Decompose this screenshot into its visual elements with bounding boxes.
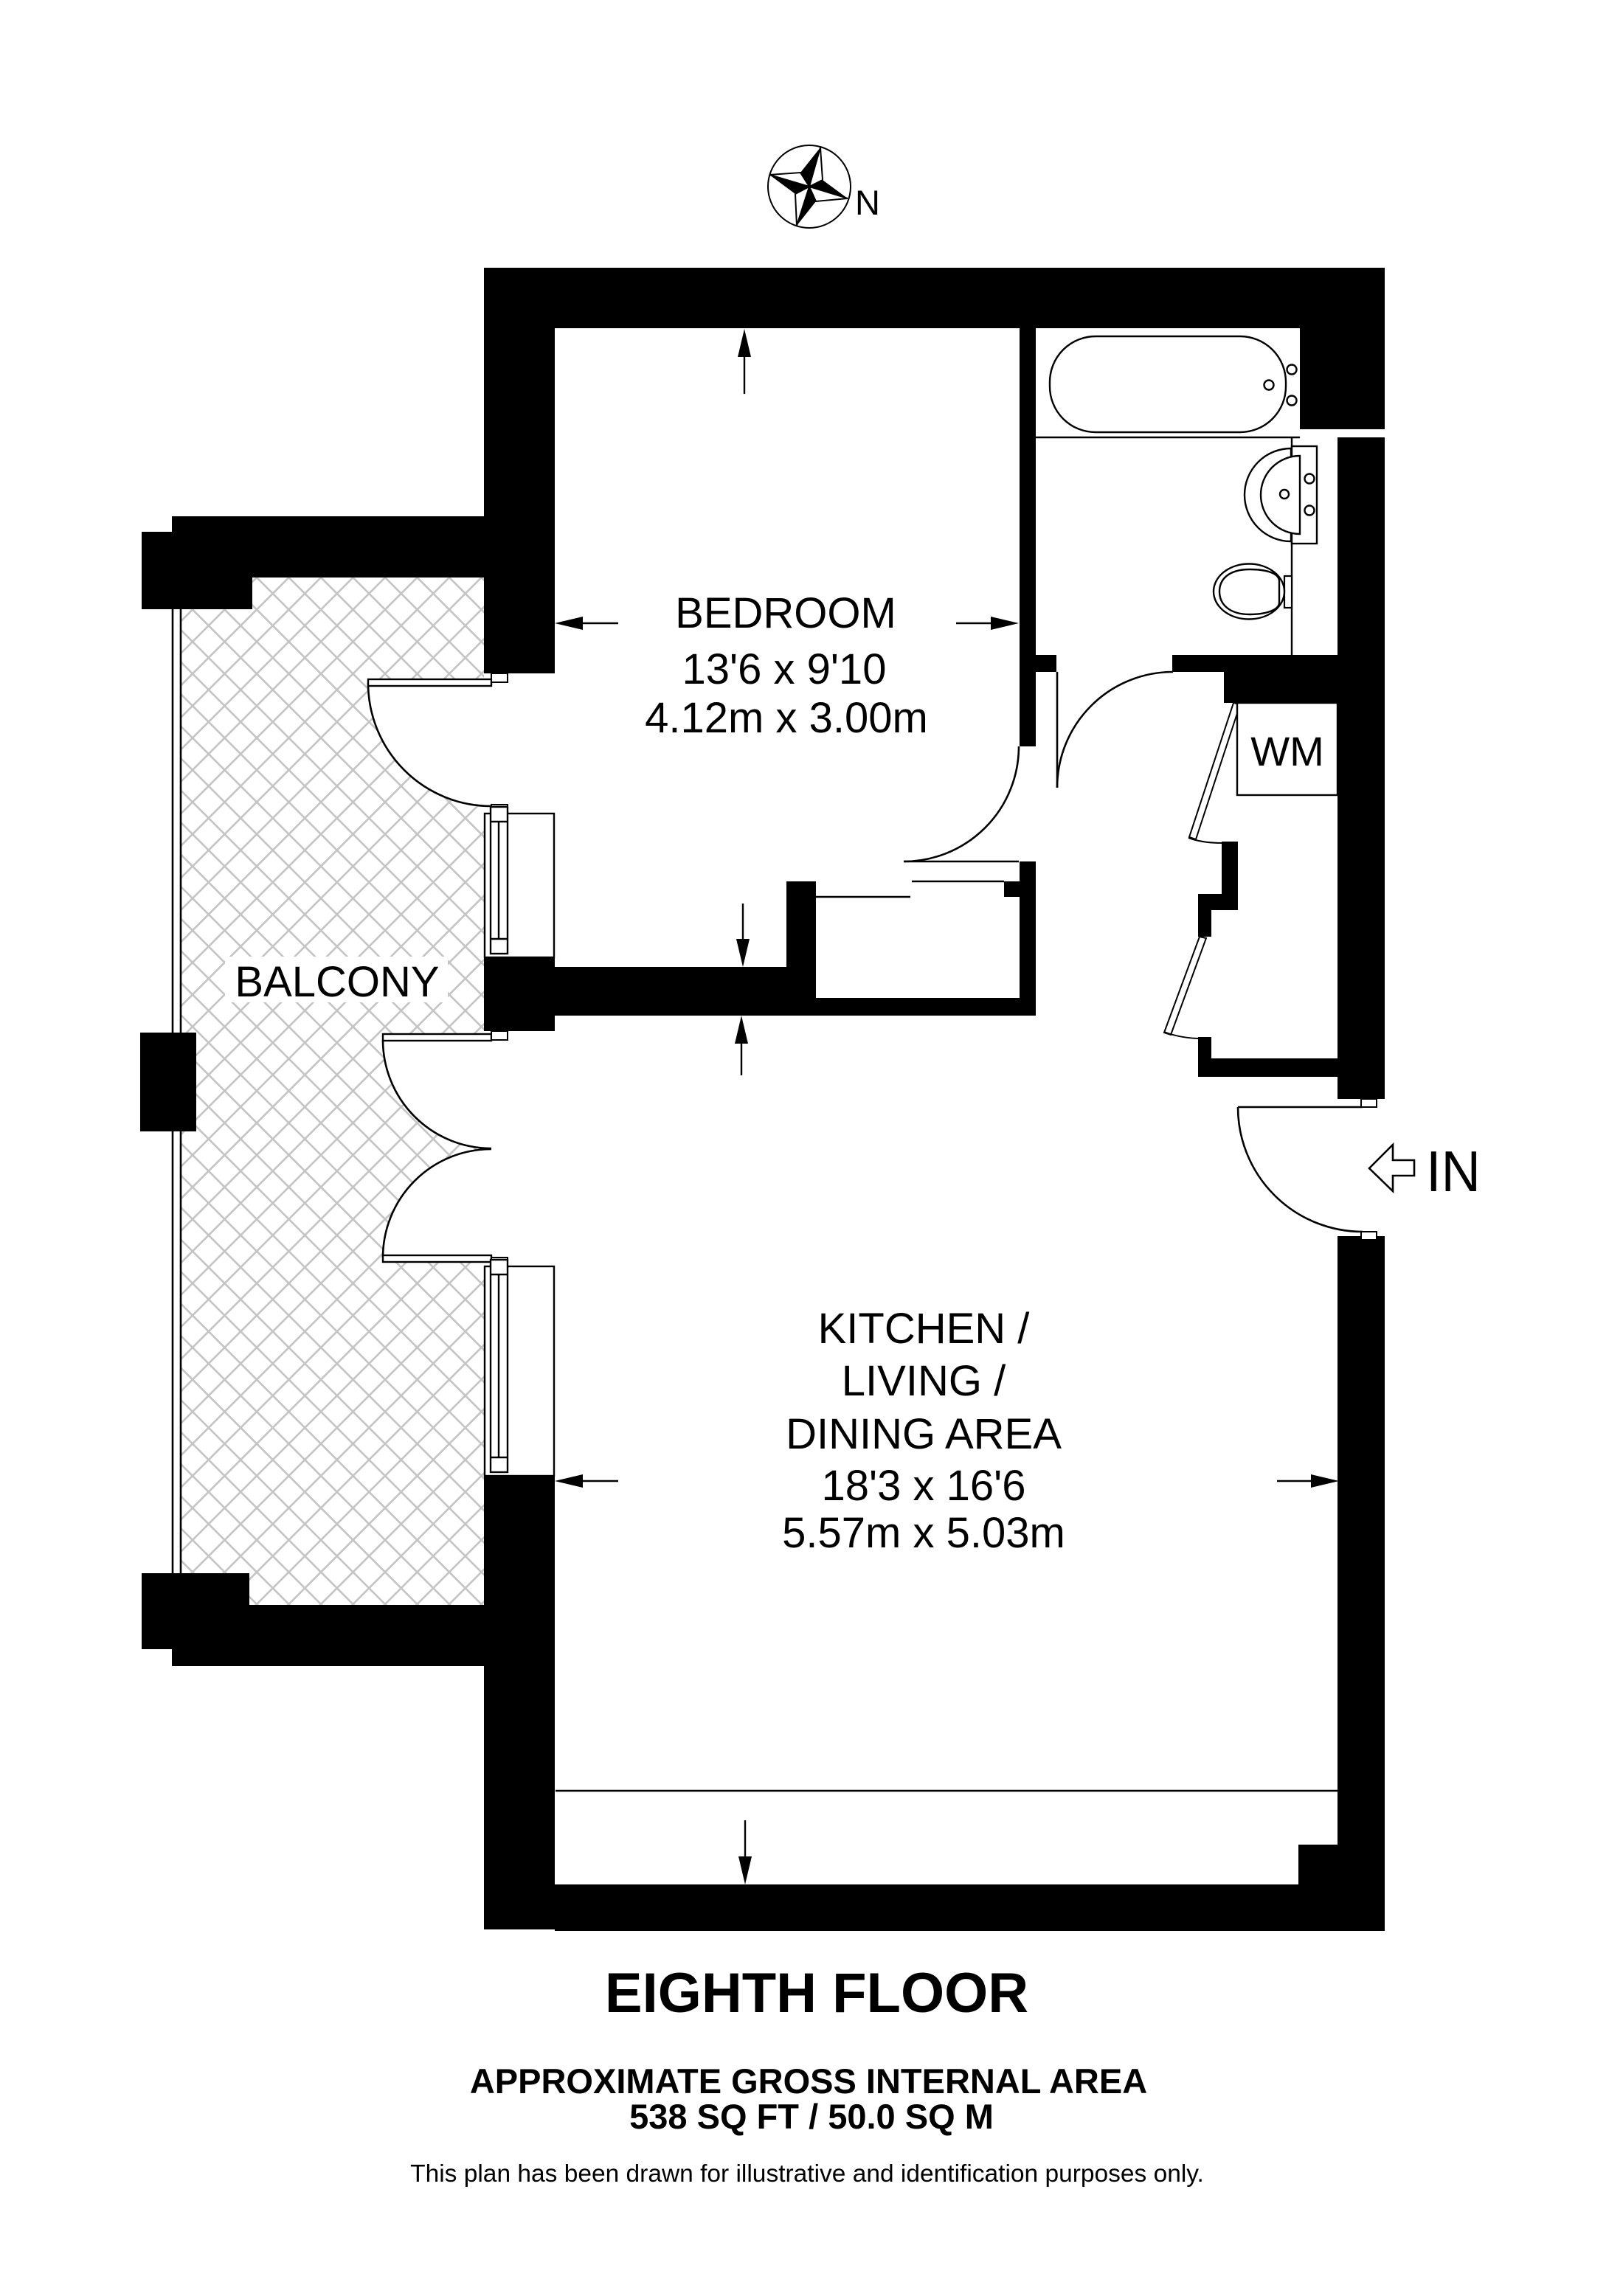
svg-text:IN: IN — [1426, 1139, 1481, 1204]
svg-text:DINING AREA: DINING AREA — [786, 1410, 1062, 1458]
svg-text:BEDROOM: BEDROOM — [675, 589, 896, 637]
svg-text:13'6 x 9'10: 13'6 x 9'10 — [682, 645, 887, 693]
svg-text:EIGHTH FLOOR: EIGHTH FLOOR — [605, 1962, 1028, 2025]
svg-text:N: N — [855, 183, 880, 222]
svg-text:KITCHEN /: KITCHEN / — [818, 1305, 1031, 1353]
svg-text:WM: WM — [1250, 728, 1324, 774]
svg-text:538 SQ FT / 50.0 SQ M: 538 SQ FT / 50.0 SQ M — [629, 2097, 994, 2136]
svg-text:18'3 x 16'6: 18'3 x 16'6 — [822, 1462, 1026, 1510]
svg-text:BALCONY: BALCONY — [235, 958, 439, 1006]
svg-text:LIVING /: LIVING / — [842, 1357, 1006, 1405]
svg-text:5.57m x 5.03m: 5.57m x 5.03m — [782, 1509, 1065, 1557]
svg-text:4.12m x 3.00m: 4.12m x 3.00m — [645, 694, 928, 742]
svg-text:This plan has been drawn for i: This plan has been drawn for illustrativ… — [410, 2160, 1204, 2188]
svg-text:APPROXIMATE GROSS INTERNAL ARE: APPROXIMATE GROSS INTERNAL AREA — [470, 2061, 1147, 2101]
